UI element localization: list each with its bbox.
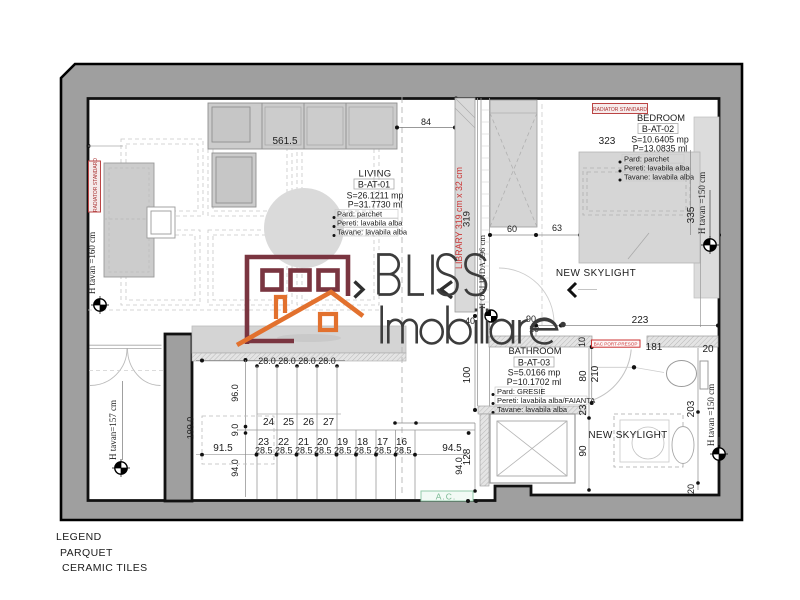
svg-text:94.0: 94.0 — [230, 459, 240, 477]
svg-text:Tavane: lavabila alba: Tavane: lavabila alba — [337, 228, 408, 237]
svg-text:NEW SKYLIGHT: NEW SKYLIGHT — [556, 268, 636, 279]
svg-text:H tavan=157 cm: H tavan=157 cm — [108, 400, 118, 460]
svg-text:PARQUET: PARQUET — [60, 547, 113, 559]
svg-text:60: 60 — [507, 224, 517, 234]
svg-text:80: 80 — [578, 370, 589, 382]
svg-text:84: 84 — [421, 117, 431, 127]
svg-text:561.5: 561.5 — [272, 136, 297, 147]
svg-text:26: 26 — [303, 417, 315, 428]
svg-text:H OGLINDA 296 cm: H OGLINDA 296 cm — [477, 235, 487, 309]
svg-text:94.5: 94.5 — [442, 443, 462, 454]
svg-text:B-AT-02: B-AT-02 — [642, 124, 674, 134]
svg-text:9.0: 9.0 — [230, 424, 240, 437]
svg-text:100: 100 — [462, 366, 473, 383]
svg-text:335: 335 — [686, 206, 697, 223]
svg-text:Tavane: lavabila alba: Tavane: lavabila alba — [497, 405, 568, 414]
svg-text:90: 90 — [578, 445, 589, 457]
svg-text:210: 210 — [590, 365, 601, 382]
svg-text:LEGEND: LEGEND — [56, 531, 102, 543]
svg-text:25: 25 — [283, 417, 295, 428]
svg-text:27: 27 — [323, 417, 335, 428]
svg-text:A.C.: A.C. — [436, 492, 457, 502]
svg-text:BAC PORT-PRESOP: BAC PORT-PRESOP — [594, 342, 638, 347]
svg-text:23: 23 — [578, 404, 589, 416]
svg-text:319: 319 — [462, 211, 473, 227]
svg-text:S=5.0166 mp: S=5.0166 mp — [508, 368, 561, 378]
svg-text:Pard: parchet: Pard: parchet — [624, 155, 670, 164]
svg-text:B-AT-03: B-AT-03 — [518, 358, 550, 368]
svg-text:323: 323 — [599, 136, 616, 147]
svg-text:P=10.1702 ml: P=10.1702 ml — [507, 377, 562, 387]
svg-text:H tavan =150 cm: H tavan =150 cm — [706, 384, 716, 446]
svg-text:P=13.0835 ml: P=13.0835 ml — [633, 144, 688, 154]
svg-text:Pard: parchet: Pard: parchet — [337, 210, 383, 219]
svg-text:20: 20 — [686, 484, 696, 494]
svg-text:BATHROOM: BATHROOM — [508, 346, 561, 356]
svg-text:24: 24 — [263, 417, 275, 428]
svg-text:Pard: GRESIE: Pard: GRESIE — [497, 387, 545, 396]
svg-text:203: 203 — [686, 400, 697, 417]
svg-text:H tavan =160 cm: H tavan =160 cm — [87, 232, 97, 294]
svg-text:CERAMIC TILES: CERAMIC TILES — [62, 562, 148, 574]
svg-text:P=31.7730 ml: P=31.7730 ml — [348, 200, 403, 210]
svg-text:Pereti: lavabila alba: Pereti: lavabila alba — [624, 164, 690, 173]
svg-text:RADIATOR STANDARD: RADIATOR STANDARD — [593, 107, 647, 113]
svg-text:91.5: 91.5 — [213, 443, 233, 454]
svg-text:63: 63 — [552, 223, 562, 233]
svg-text:20: 20 — [702, 344, 714, 355]
svg-text:223: 223 — [632, 315, 649, 326]
svg-text:LIVING: LIVING — [359, 169, 392, 180]
svg-text:BEDROOM: BEDROOM — [637, 113, 685, 123]
svg-text:B-AT-01: B-AT-01 — [358, 180, 390, 190]
svg-text:RADIATOR STANDARD: RADIATOR STANDARD — [93, 158, 99, 212]
svg-text:NEW SKYLIGHT: NEW SKYLIGHT — [588, 430, 667, 441]
svg-text:94.0: 94.0 — [454, 457, 464, 475]
svg-text:H tavan =150 cm: H tavan =150 cm — [697, 172, 707, 234]
svg-text:Pereti: lavabila alba: Pereti: lavabila alba — [337, 219, 403, 228]
svg-text:Tavane: lavabila alba: Tavane: lavabila alba — [624, 173, 695, 182]
svg-text:96.0: 96.0 — [230, 384, 240, 402]
svg-text:10: 10 — [577, 337, 587, 347]
svg-text:Pereti: lavabila alba/FAIANTA: Pereti: lavabila alba/FAIANTA — [497, 396, 595, 405]
svg-text:199.0: 199.0 — [186, 417, 196, 440]
svg-text:181: 181 — [646, 342, 663, 353]
